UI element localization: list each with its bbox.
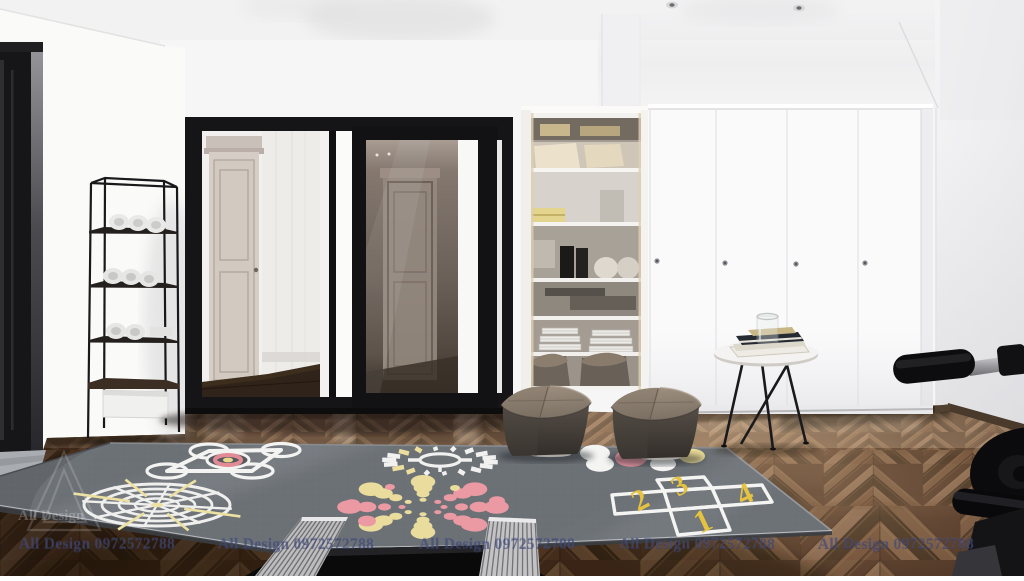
svg-text:All Design 0972572788: All Design 0972572788 — [218, 535, 374, 552]
svg-text:All Design: All Design — [18, 508, 85, 524]
svg-text:All Design 0972572788: All Design 0972572788 — [19, 535, 175, 552]
svg-text:All Design 0972572788: All Design 0972572788 — [619, 535, 775, 552]
svg-text:All Design 0972572788: All Design 0972572788 — [818, 535, 974, 552]
svg-text:All Design 0972572788: All Design 0972572788 — [419, 535, 575, 552]
